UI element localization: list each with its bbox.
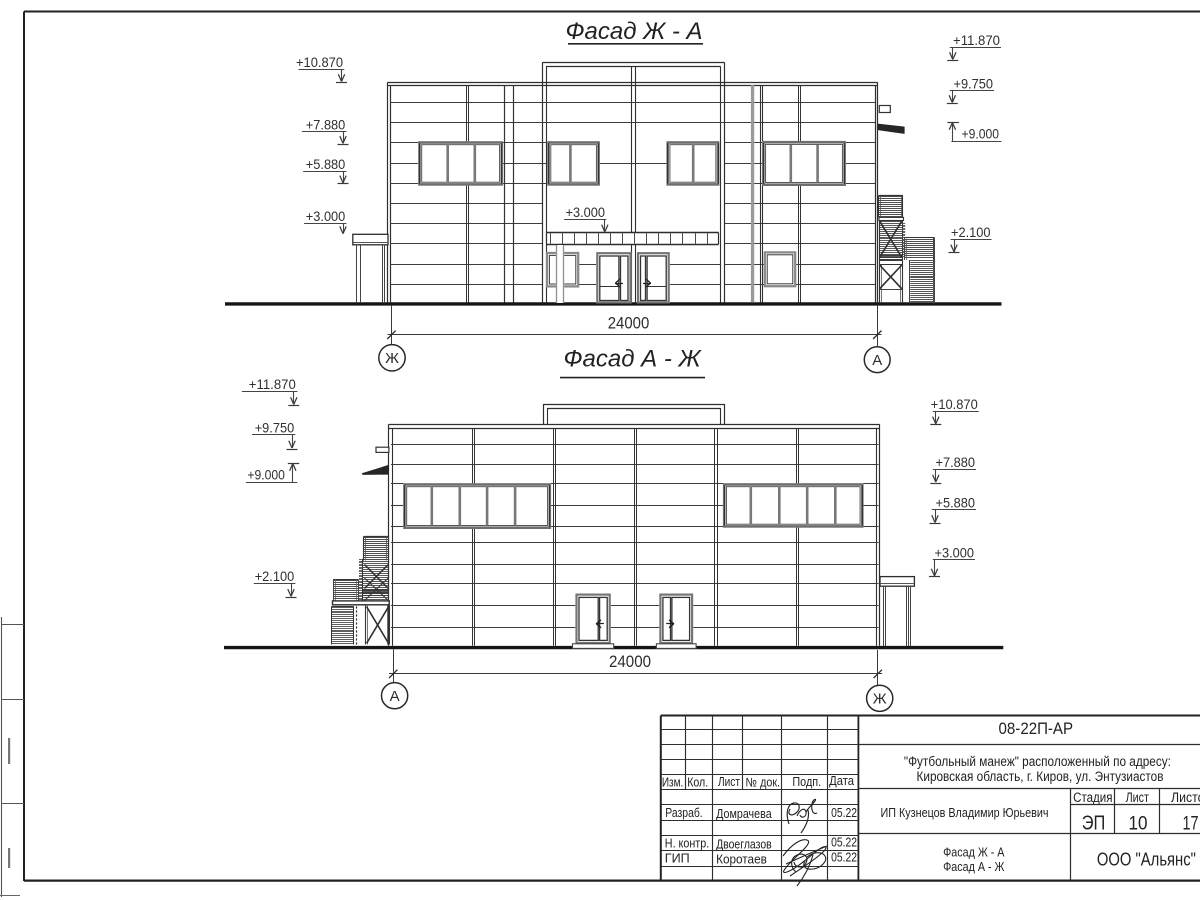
svg-text:Н. контр.: Н. контр. — [665, 836, 709, 850]
svg-text:Фасад А - Ж: Фасад А - Ж — [943, 859, 1004, 874]
svg-text:+9.000: +9.000 — [962, 126, 1000, 141]
svg-text:Дата: Дата — [829, 774, 854, 788]
svg-text:+5.880: +5.880 — [936, 495, 976, 510]
svg-text:ГИП: ГИП — [665, 851, 690, 865]
svg-text:Двоеглазов: Двоеглазов — [716, 837, 772, 851]
svg-text:ЭП: ЭП — [1082, 812, 1106, 834]
svg-text:+9.000: +9.000 — [247, 467, 285, 482]
svg-text:Фасад Ж - А: Фасад Ж - А — [943, 844, 1005, 859]
svg-text:05.22: 05.22 — [831, 806, 857, 820]
svg-text:№ док.: № док. — [746, 775, 781, 789]
svg-text:+9.750: +9.750 — [954, 76, 994, 91]
svg-text:+3.000: +3.000 — [306, 209, 346, 224]
svg-text:+2.100: +2.100 — [951, 225, 991, 240]
svg-text:08-22П-АР: 08-22П-АР — [999, 719, 1074, 738]
svg-text:А: А — [872, 352, 882, 369]
svg-text:"Футбольный манеж" расположенн: "Футбольный манеж" расположенный по адре… — [904, 754, 1171, 769]
svg-text:24000: 24000 — [608, 313, 650, 332]
svg-text:Ж: Ж — [873, 691, 887, 708]
svg-text:+2.100: +2.100 — [255, 569, 295, 584]
svg-text:Кировская область, г. Киров, у: Кировская область, г. Киров, ул. Энтузиа… — [917, 769, 1164, 784]
svg-text:10: 10 — [1129, 813, 1148, 834]
svg-text:+11.870: +11.870 — [249, 377, 296, 392]
svg-text:+7.880: +7.880 — [936, 455, 976, 470]
svg-text:Подп.: Подп. — [792, 775, 821, 789]
svg-text:05.22: 05.22 — [831, 836, 857, 850]
svg-text:+10.870: +10.870 — [931, 397, 978, 412]
svg-text:ИП Кузнецов Владимир Юрьевич: ИП Кузнецов Владимир Юрьевич — [881, 805, 1049, 820]
svg-text:Изм.: Изм. — [662, 775, 684, 789]
svg-text:Коротаев: Коротаев — [716, 852, 767, 866]
svg-text:Разраб.: Разраб. — [665, 806, 702, 820]
svg-text:Фасад А - Ж: Фасад А - Ж — [563, 346, 702, 373]
svg-text:Домрачева: Домрачева — [716, 807, 772, 821]
svg-text:05.22: 05.22 — [831, 851, 857, 865]
svg-text:ООО "Альянс": ООО "Альянс" — [1097, 849, 1196, 869]
svg-text:+3.000: +3.000 — [566, 205, 606, 220]
svg-text:Кол.: Кол. — [687, 775, 708, 789]
svg-text:Фасад Ж - А: Фасад Ж - А — [565, 18, 702, 45]
svg-text:+11.870: +11.870 — [953, 33, 1000, 48]
svg-text:Лист: Лист — [718, 775, 740, 789]
svg-text:Ж: Ж — [385, 350, 399, 367]
svg-text:+7.880: +7.880 — [306, 117, 346, 132]
svg-text:А: А — [390, 688, 400, 705]
svg-text:+10.870: +10.870 — [296, 55, 343, 70]
svg-text:+3.000: +3.000 — [935, 545, 975, 560]
svg-text:Стадия: Стадия — [1073, 790, 1112, 805]
svg-text:17: 17 — [1183, 813, 1199, 834]
svg-text:+5.880: +5.880 — [306, 157, 346, 172]
svg-text:Лист: Лист — [1126, 790, 1149, 805]
svg-text:24000: 24000 — [609, 652, 651, 671]
svg-text:Листов: Листов — [1171, 790, 1200, 805]
svg-text:+9.750: +9.750 — [255, 421, 295, 436]
